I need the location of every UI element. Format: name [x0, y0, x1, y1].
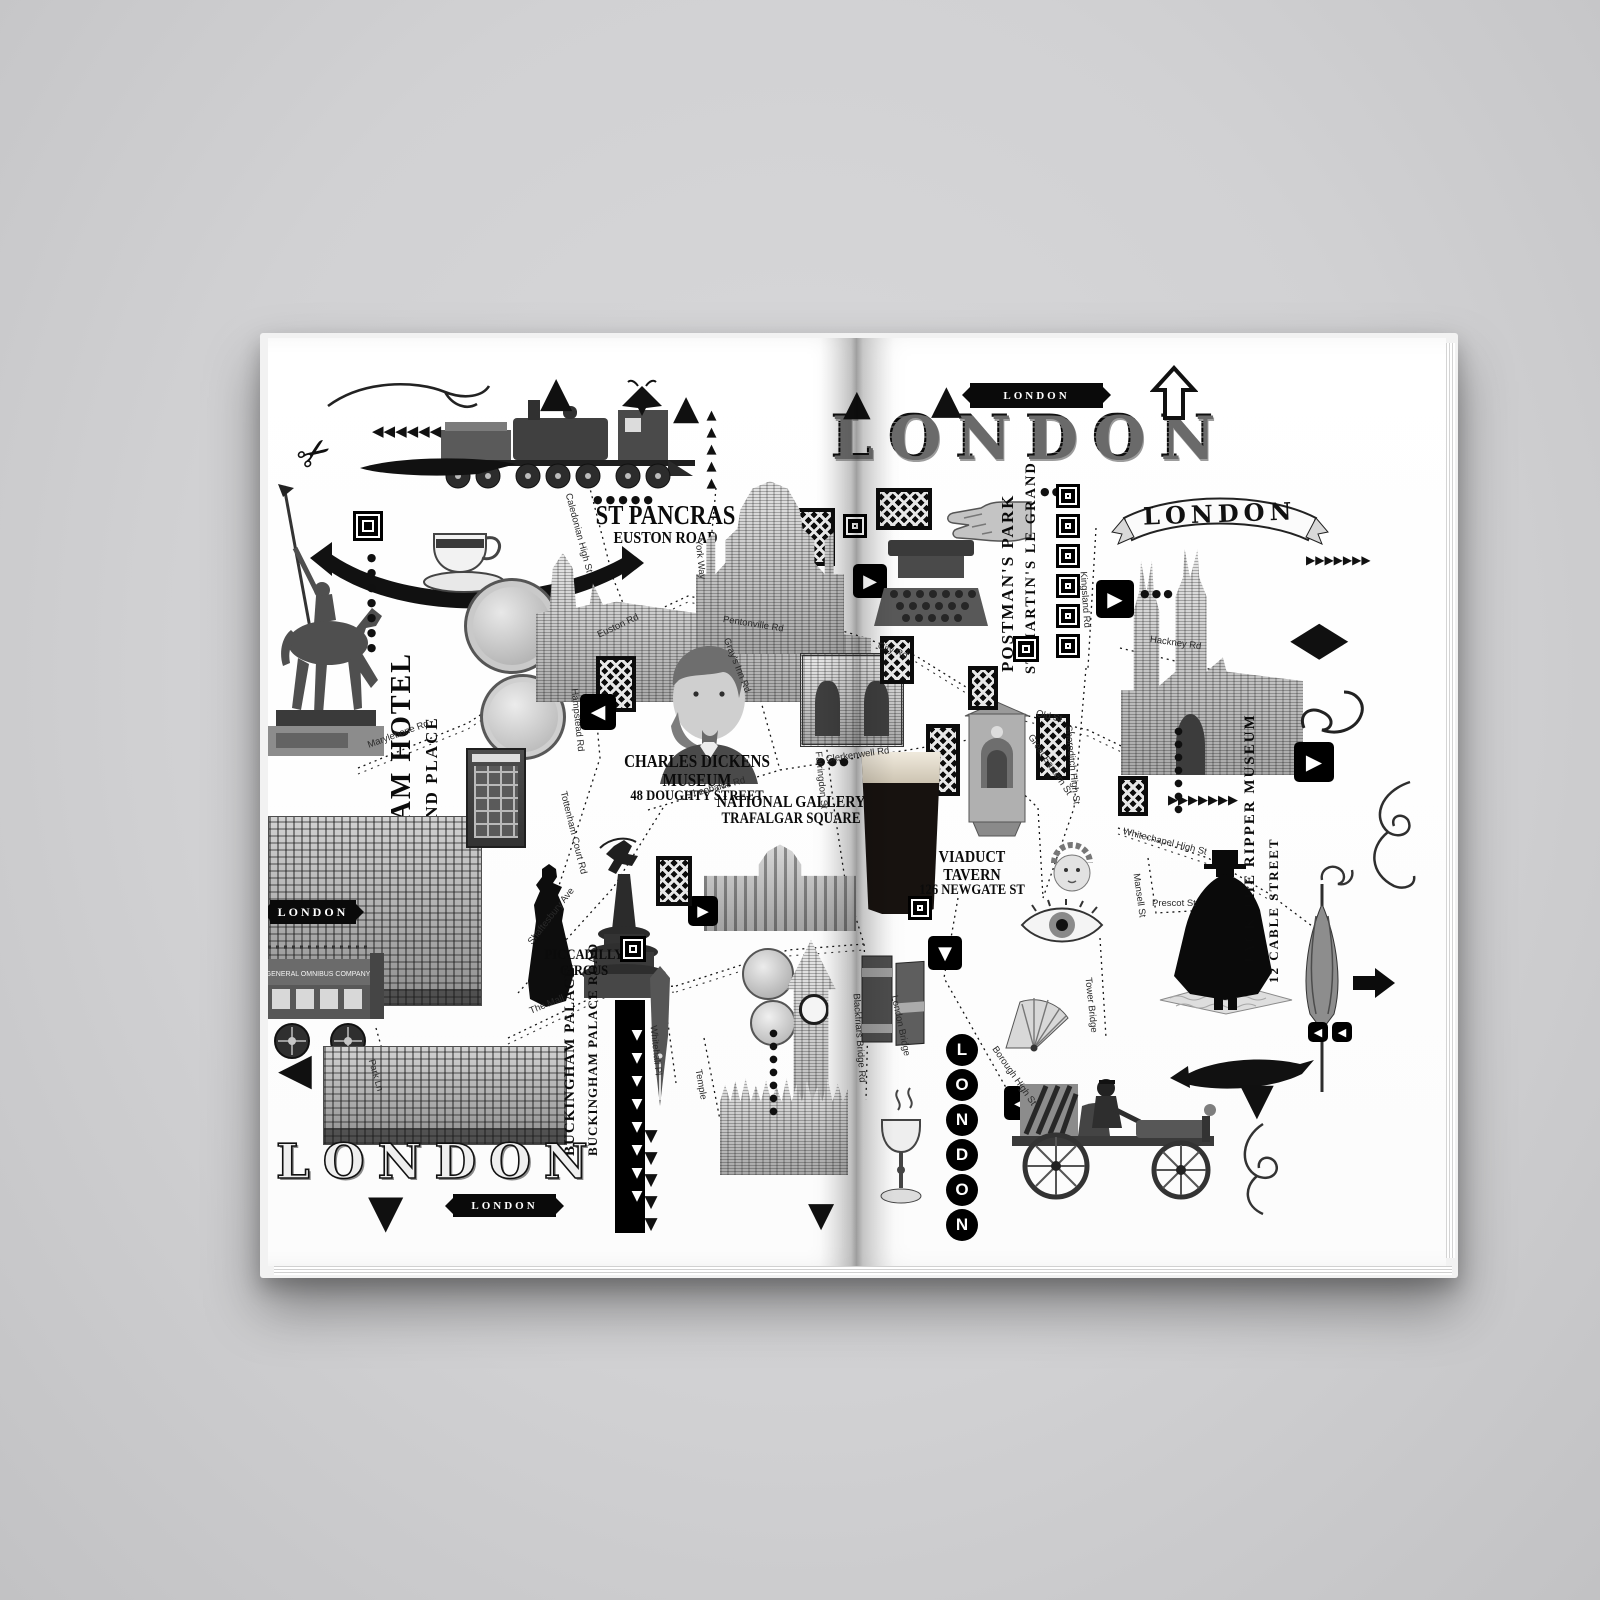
- banner-text: LONDON: [1003, 390, 1069, 402]
- outline-up-arrow-icon: [1150, 364, 1198, 422]
- swoosh-ornament: [358, 454, 518, 476]
- tree-column-ornament: ▲▲▲▲▲: [705, 408, 718, 493]
- typewriter-icon: [870, 530, 992, 632]
- right-arrow-icon: ▶: [697, 902, 709, 920]
- deco-tile: [968, 666, 998, 710]
- banner-text: LONDON: [471, 1200, 537, 1212]
- london-ribbon-banner: LONDON: [1110, 472, 1330, 560]
- play-arrow-box: ▶: [1294, 742, 1334, 782]
- double-left-arrow-boxes: ◀ ◀: [1308, 1022, 1352, 1042]
- qr-ornament: [843, 514, 867, 538]
- deco-tile: [656, 856, 692, 906]
- deco-tile: [876, 488, 932, 530]
- down-arrow-icon: ▼: [938, 943, 952, 964]
- flourish-ornament: [1350, 774, 1425, 899]
- chevrons-down-column: ▼▼▼▼▼: [642, 1126, 659, 1236]
- open-book: ◀◀◀◀◀◀ ▲ ▲ ▲▲▲▲▲ ✂ ●●●●● ST PANCRAS EUST…: [268, 338, 1446, 1266]
- telephone-box-icon: [466, 748, 526, 848]
- qr-column-ornament: [1056, 484, 1080, 658]
- goblet-icon: [870, 1086, 932, 1214]
- london-ribbon-bottom: LONDON: [453, 1194, 556, 1217]
- left-arrow-icon: ◀: [1338, 1026, 1346, 1039]
- jack-the-ripper-museum-label: JACK THE RIPPER MUSEUM: [1242, 800, 1259, 965]
- qr-ornament: [1013, 636, 1039, 662]
- qr-ornament: [908, 896, 932, 920]
- deco-tile: [1118, 776, 1148, 816]
- chevrons-right-icon: ▶▶▶▶▶▶▶: [1306, 554, 1371, 566]
- qr-ornament: [353, 511, 383, 541]
- up-arrow-icon: ▲: [843, 386, 871, 422]
- street-label: Prescot St: [1152, 898, 1196, 909]
- left-arrow-icon: ◀: [278, 1048, 312, 1092]
- ribbon-squiggle-ornament: [1296, 684, 1366, 739]
- down-arrow-icon: ▼: [808, 1198, 834, 1232]
- dots-column: ●●●●●●●: [768, 1028, 778, 1119]
- jack-the-ripper-address-label: 12 CABLE STREET: [1266, 878, 1282, 983]
- london-vertical-badge: LONDON: [946, 1034, 978, 1241]
- dots-ornament: ●●●: [1140, 588, 1175, 599]
- up-arrow-icon: ▲: [931, 380, 962, 420]
- up-arrow-icon: ▲: [673, 391, 699, 425]
- play-arrow-box: ◀: [580, 694, 616, 730]
- dots-column: ●●●●●●●: [1173, 726, 1183, 817]
- play-arrow-box: ▼: [928, 936, 962, 970]
- viaduct-tavern-label: VIADUCT TAVERN 126 NEWGATE ST: [902, 848, 1042, 899]
- london-banner-black: LONDON: [270, 900, 356, 924]
- moth-ornament-icon: [616, 378, 668, 418]
- london-map-spread: ◀◀◀◀◀◀ ▲ ▲ ▲▲▲▲▲ ✂ ●●●●● ST PANCRAS EUST…: [268, 338, 1446, 1266]
- banner-text: LONDON: [278, 905, 349, 920]
- left-arrow-icon: ◀: [1314, 1026, 1322, 1039]
- svg-text:GENERAL OMNIBUS COMPANY: GENERAL OMNIBUS COMPANY: [268, 971, 371, 978]
- page-stack-edge-bottom: [274, 1266, 1452, 1275]
- buckingham-palace-photo: [323, 1046, 567, 1145]
- down-arrow-icon: ▼: [1240, 1078, 1274, 1122]
- flourish-ornament: [1223, 1118, 1288, 1218]
- national-gallery-label: NATIONAL GALLERY TRAFALGAR SQUARE: [696, 793, 886, 827]
- victorian-coin-icon: [742, 948, 794, 1000]
- play-arrow-box: ▶: [1096, 580, 1134, 618]
- eye-icon: [1018, 899, 1106, 951]
- right-arrow-icon: ▶: [1107, 587, 1122, 611]
- photo-backdrop: ◀◀◀◀◀◀ ▲ ▲ ▲▲▲▲▲ ✂ ●●●●● ST PANCRAS EUST…: [0, 0, 1600, 1600]
- drinking-fountain-icon: [961, 702, 1033, 844]
- london-title-bottom: LONDON: [276, 1134, 601, 1190]
- diamond-ornament: ◆: [1290, 614, 1348, 661]
- up-arrow-icon: ▲: [540, 371, 572, 413]
- play-arrow-box: ▶: [688, 896, 718, 926]
- left-arrow-icon: ◀: [591, 701, 606, 723]
- down-arrow-icon: ▼: [368, 1188, 403, 1234]
- svg-text:LONDON: LONDON: [1143, 496, 1297, 530]
- woman-face-icon: [1044, 839, 1100, 901]
- dots-column: ●●●●●●●: [366, 551, 377, 656]
- london-banner-top: LONDON: [970, 383, 1103, 408]
- right-arrow-icon: ▶: [1306, 750, 1322, 774]
- qr-ornament: [620, 936, 646, 962]
- chevrons-left-icon: ◀◀◀◀◀◀: [372, 424, 441, 439]
